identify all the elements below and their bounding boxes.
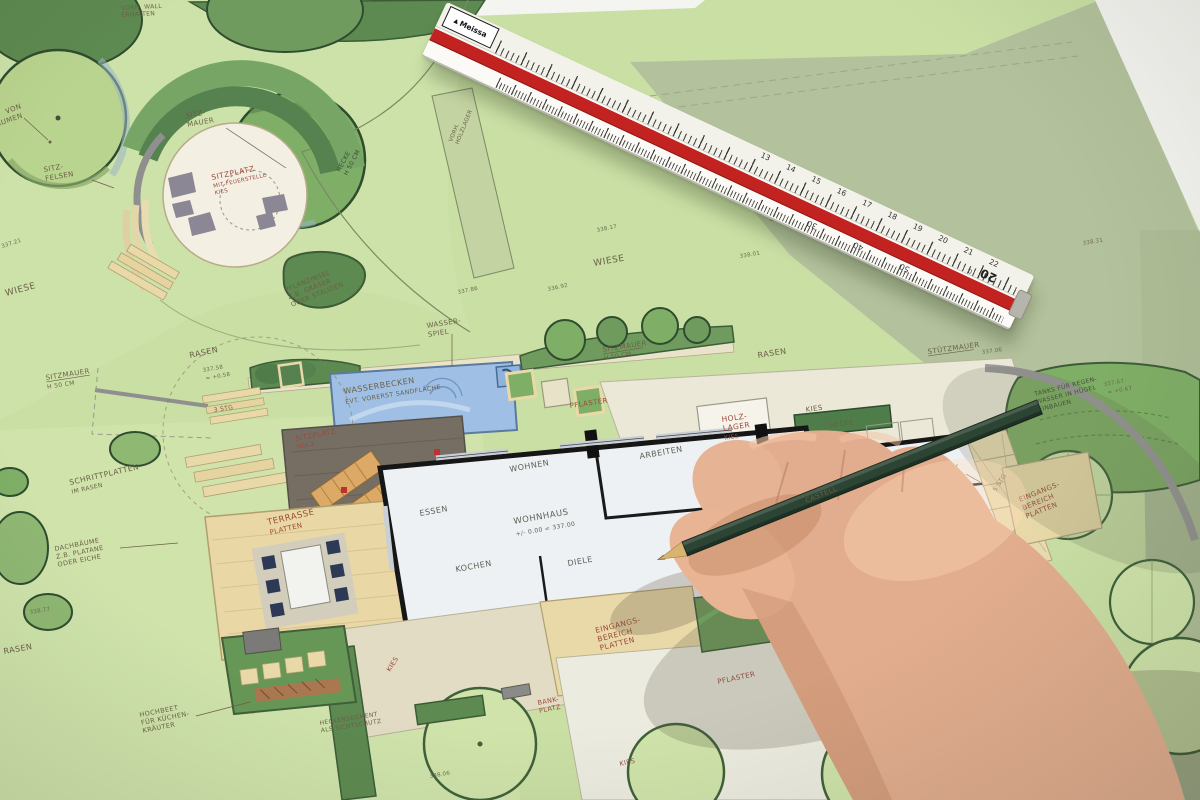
photo-garden-plan: VORH. WALLERHALTEN VON BÄUMEN SITZ-MAUER… xyxy=(0,0,1200,800)
hand-and-pencil-layer: CASTELL xyxy=(0,0,1200,800)
